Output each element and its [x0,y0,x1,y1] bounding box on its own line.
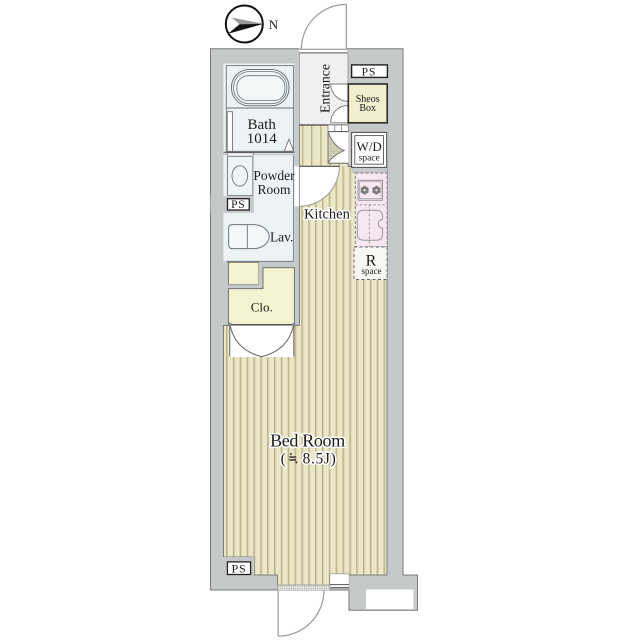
svg-text:1014: 1014 [247,131,278,147]
svg-text:W/D: W/D [357,139,382,154]
svg-text:8.5J): 8.5J) [303,450,337,467]
svg-text:space: space [362,266,382,276]
svg-text:Entrance: Entrance [318,64,333,113]
svg-text:Room: Room [257,182,291,197]
svg-text:PS: PS [231,199,245,211]
svg-text:Kitchen: Kitchen [304,207,351,223]
svg-text:Box: Box [359,103,376,114]
svg-text:Bed Room: Bed Room [270,431,345,451]
svg-text:(: ( [281,450,286,467]
svg-text:Lav.: Lav. [270,230,294,245]
svg-text:Clo.: Clo. [251,299,273,314]
svg-text:Powder: Powder [253,168,295,183]
svg-text:PS: PS [232,562,247,576]
svg-text:PS: PS [362,66,377,78]
svg-text:space: space [359,154,380,164]
svg-text:N: N [269,17,279,32]
